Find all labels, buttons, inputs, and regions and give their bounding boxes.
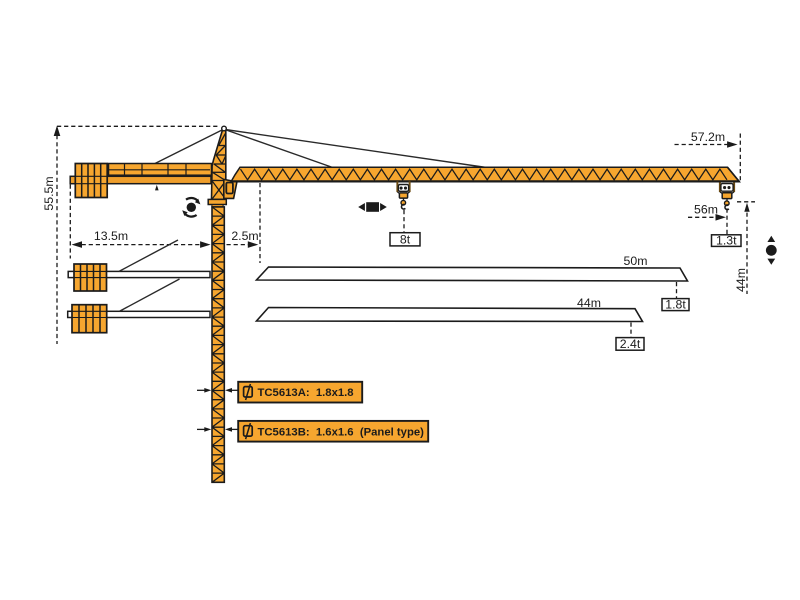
svg-text:55.5m: 55.5m — [42, 176, 56, 210]
svg-text:TC5613A: 1.8x1.8: TC5613A: 1.8x1.8 — [258, 387, 354, 399]
svg-text:2.4t: 2.4t — [620, 337, 641, 351]
svg-text:8t: 8t — [400, 232, 411, 246]
svg-text:44m: 44m — [734, 268, 748, 292]
svg-text:44m: 44m — [577, 296, 601, 310]
svg-text:TC5613B: 1.6x1.6 (Panel type: TC5613B: 1.6x1.6 (Panel type) — [258, 426, 425, 438]
svg-text:57.2m: 57.2m — [691, 130, 725, 144]
svg-text:2.5m: 2.5m — [231, 229, 258, 243]
svg-text:1.3t: 1.3t — [716, 234, 737, 248]
svg-text:1.8t: 1.8t — [665, 298, 686, 312]
svg-text:13.5m: 13.5m — [94, 229, 128, 243]
svg-text:56m: 56m — [694, 202, 718, 216]
svg-text:50m: 50m — [624, 254, 648, 268]
